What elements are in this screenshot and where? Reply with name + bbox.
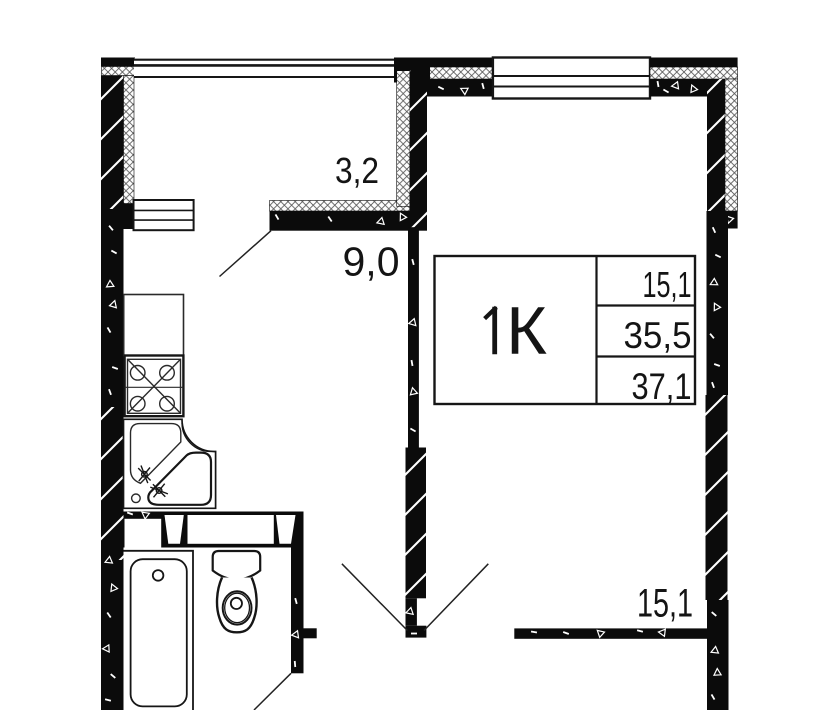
svg-text:15,1: 15,1 (637, 582, 693, 626)
svg-text:К: К (506, 293, 547, 369)
svg-text:35,5: 35,5 (624, 315, 692, 356)
svg-text:9,0: 9,0 (343, 239, 400, 285)
svg-text:37,1: 37,1 (632, 366, 692, 407)
svg-text:15,1: 15,1 (643, 264, 692, 305)
svg-text:3,2: 3,2 (335, 150, 379, 191)
